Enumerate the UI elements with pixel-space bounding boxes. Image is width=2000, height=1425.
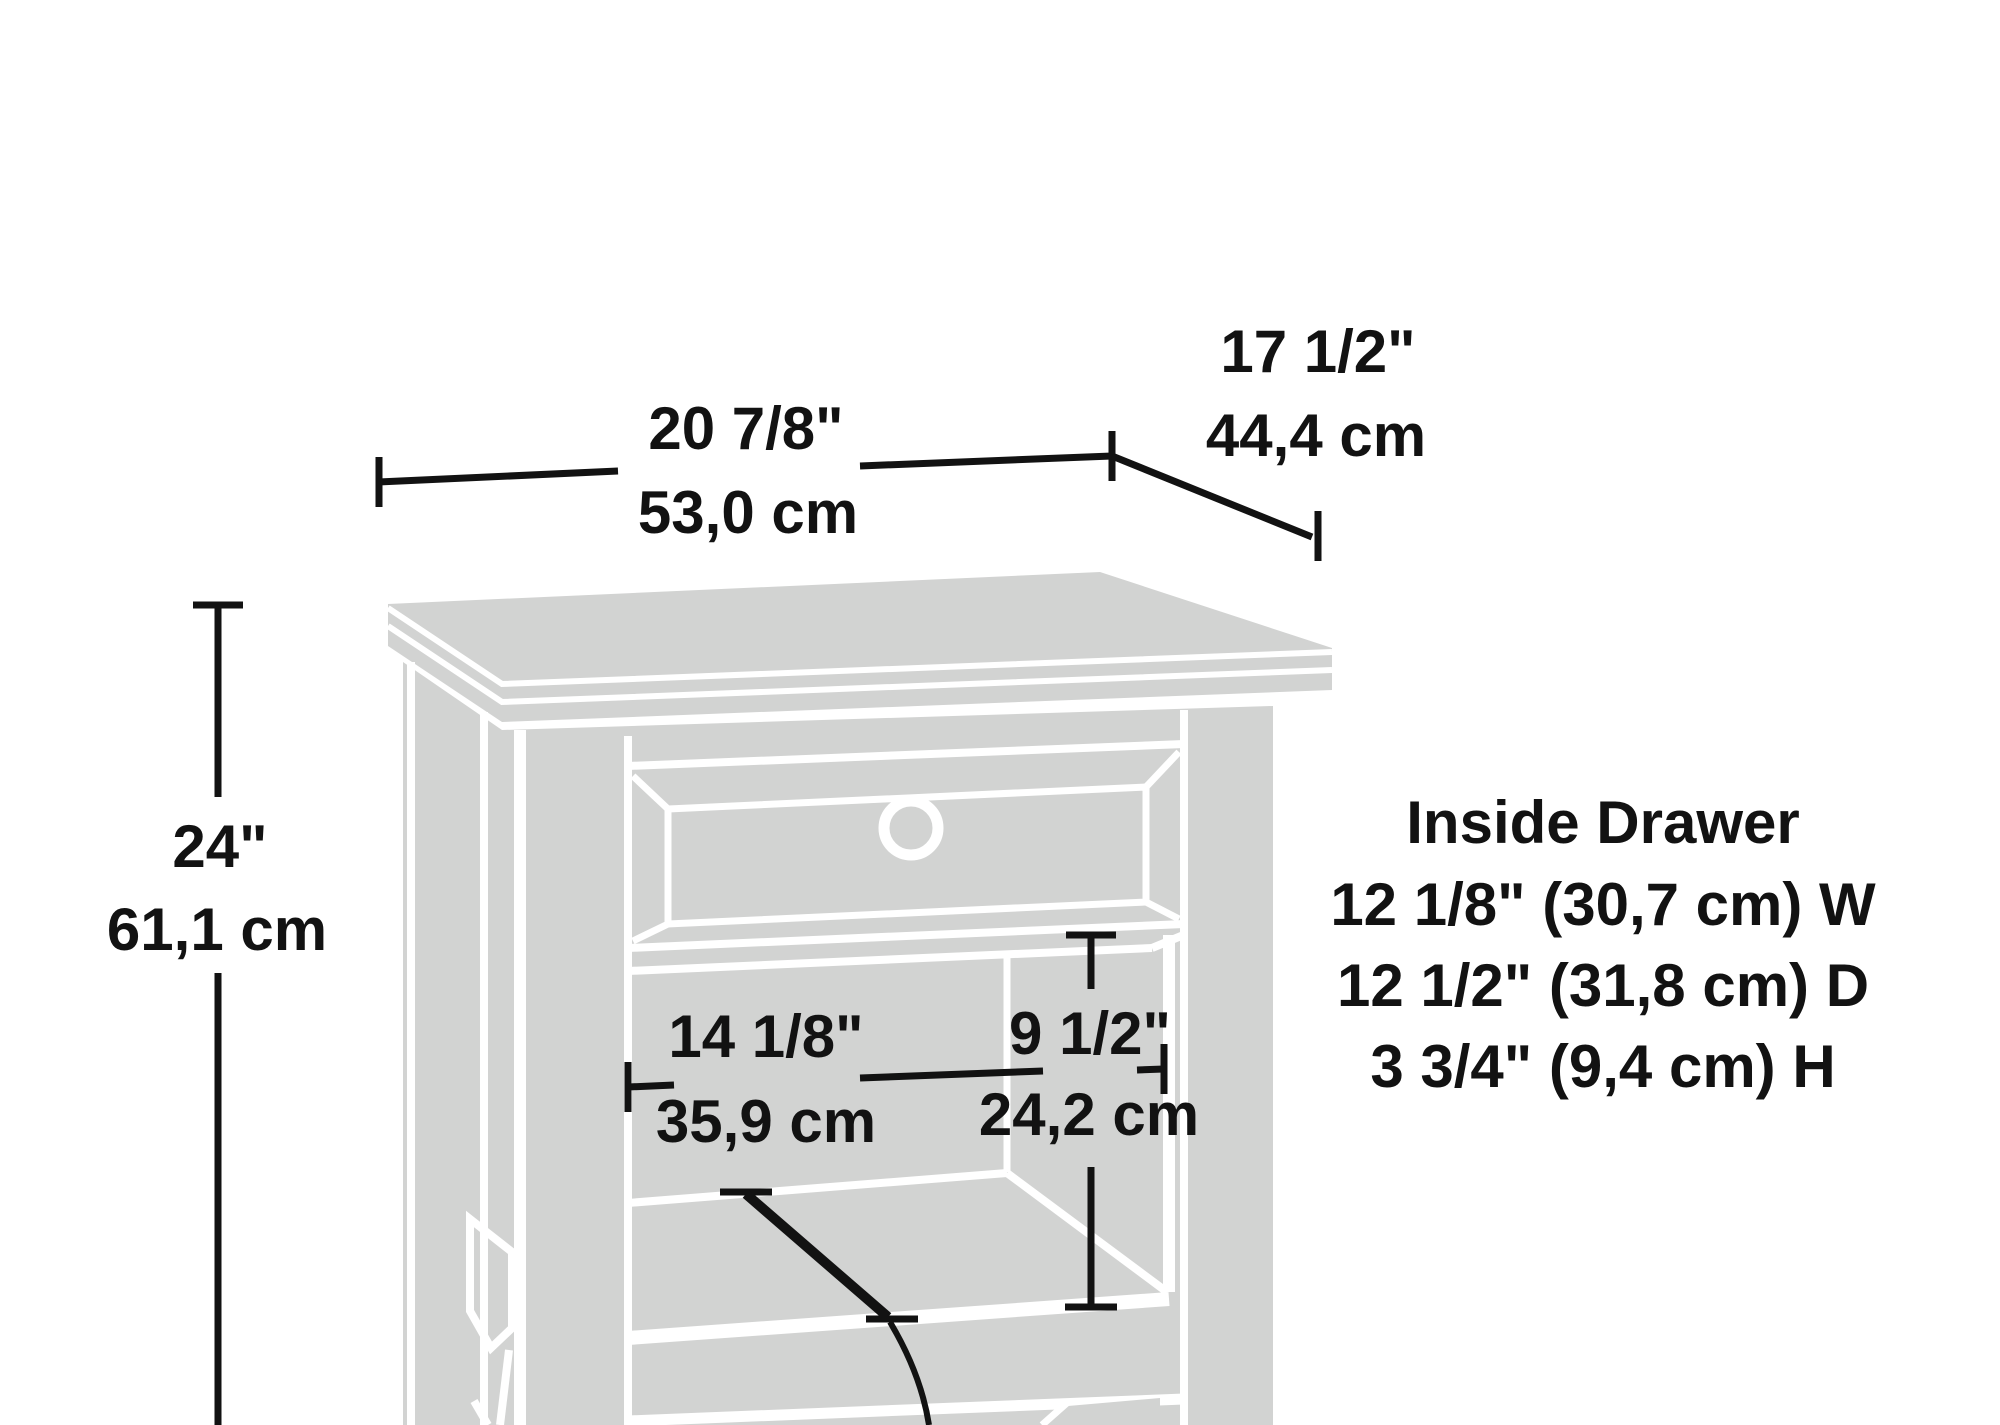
height-label-inches: 24" xyxy=(172,813,267,880)
inside-drawer-heading: Inside Drawer xyxy=(1406,789,1800,856)
inside-drawer-depth-line: 12 1/2" (31,8 cm) D xyxy=(1337,952,1869,1019)
height-dimension-line xyxy=(193,605,243,1425)
width-label-inches: 20 7/8" xyxy=(648,395,843,462)
dimension-diagram-page: 20 7/8" 53,0 cm 17 1/2" 44,4 cm 24" 61,1… xyxy=(0,0,2000,1425)
width-line-right-segment xyxy=(860,456,1112,466)
width-label-cm: 53,0 cm xyxy=(638,479,858,546)
opening-height-label-cm: 24,2 cm xyxy=(979,1081,1199,1148)
opening-width-segment-3 xyxy=(1137,1069,1164,1070)
opening-width-label-cm: 35,9 cm xyxy=(656,1088,876,1155)
depth-dimension-line xyxy=(1112,456,1318,561)
inside-drawer-height-line: 3 3/4" (9,4 cm) H xyxy=(1370,1033,1835,1100)
opening-height-label-inches: 9 1/2" xyxy=(1009,1000,1171,1067)
depth-label-inches: 17 1/2" xyxy=(1220,318,1415,385)
width-line-left-segment xyxy=(379,471,618,482)
inside-drawer-width-line: 12 1/8" (30,7 cm) W xyxy=(1330,871,1876,938)
height-label-cm: 61,1 cm xyxy=(107,896,327,963)
inside-drawer-text-block: Inside Drawer 12 1/8" (30,7 cm) W 12 1/2… xyxy=(1330,789,1876,1100)
opening-width-label-inches: 14 1/8" xyxy=(668,1003,863,1070)
depth-label-cm: 44,4 cm xyxy=(1206,402,1426,469)
tabletop xyxy=(388,572,1332,722)
nightstand-dimension-diagram: 20 7/8" 53,0 cm 17 1/2" 44,4 cm 24" 61,1… xyxy=(0,0,2000,1425)
opening-width-segment-1 xyxy=(628,1085,674,1087)
